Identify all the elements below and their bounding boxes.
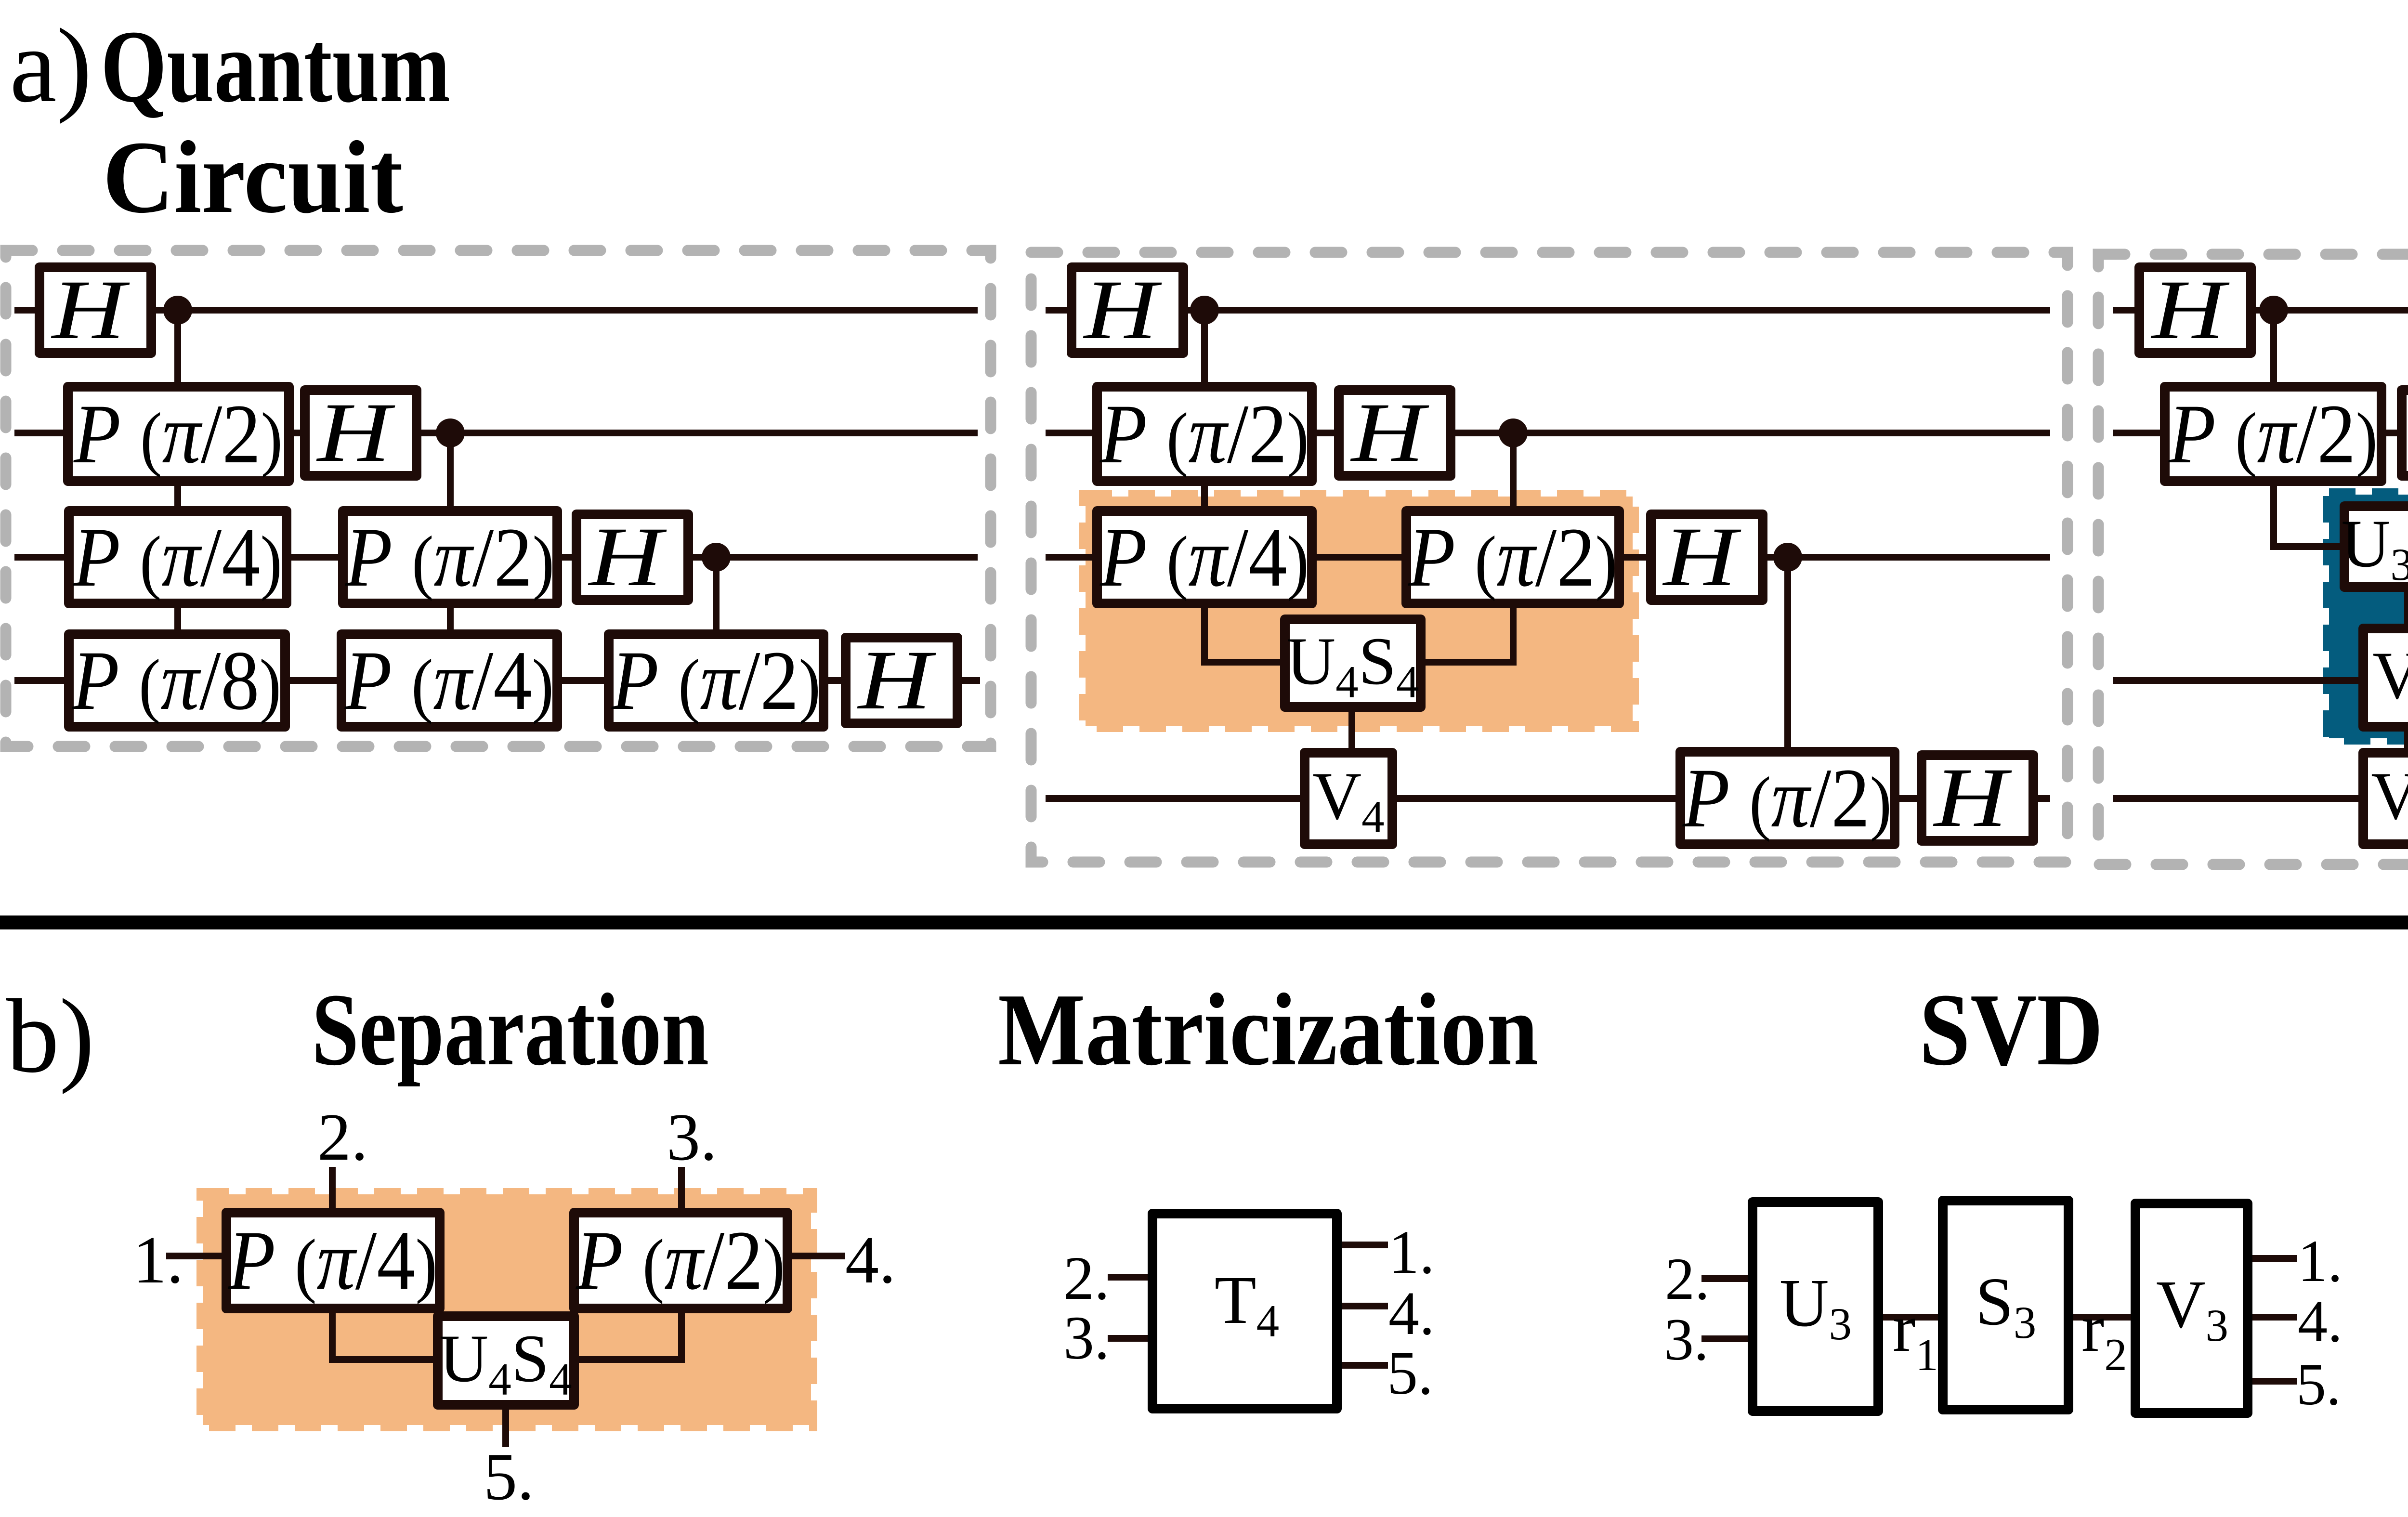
svg-text:P (π/8): P (π/8) xyxy=(72,634,281,728)
svg-text:3.: 3. xyxy=(1664,1307,1709,1373)
svg-text:H: H xyxy=(857,633,937,727)
svg-text:4.: 4. xyxy=(845,1223,896,1297)
svg-text:H: H xyxy=(1662,510,1742,604)
svg-text:2.: 2. xyxy=(1665,1246,1710,1312)
svg-text:5.: 5. xyxy=(2296,1351,2341,1417)
svg-text:H: H xyxy=(1083,263,1163,357)
svg-text:1.: 1. xyxy=(133,1223,183,1297)
svg-text:P (π/2): P (π/2) xyxy=(73,387,283,481)
svg-text:Matricization: Matricization xyxy=(998,972,1538,1087)
svg-text:H: H xyxy=(51,263,131,357)
svg-text:4.: 4. xyxy=(1388,1279,1435,1347)
svg-text:V4: V4 xyxy=(2371,758,2408,842)
svg-text:H: H xyxy=(588,510,667,604)
svg-text:V3: V3 xyxy=(2372,638,2408,722)
svg-text:b): b) xyxy=(6,977,94,1095)
svg-text:H: H xyxy=(316,386,396,480)
svg-text:1.: 1. xyxy=(1388,1218,1435,1286)
svg-text:P (π/2): P (π/2) xyxy=(576,1214,785,1308)
svg-text:P (π/2): P (π/2) xyxy=(1408,510,1617,604)
svg-text:P (π/2): P (π/2) xyxy=(611,634,821,728)
svg-text:3.: 3. xyxy=(1063,1304,1110,1372)
svg-text:4.: 4. xyxy=(2298,1288,2343,1354)
svg-text:2.: 2. xyxy=(317,1100,368,1175)
svg-text:5.: 5. xyxy=(1387,1339,1433,1407)
svg-text:P (π/4): P (π/4) xyxy=(1099,510,1309,604)
svg-text:P (π/2): P (π/2) xyxy=(345,510,554,604)
svg-text:P (π/2): P (π/2) xyxy=(1682,751,1892,845)
svg-text:P (π/4): P (π/4) xyxy=(228,1214,437,1308)
svg-text:H: H xyxy=(1350,386,1430,480)
svg-text:a): a) xyxy=(10,7,92,124)
svg-text:P (π/4): P (π/4) xyxy=(73,510,282,604)
svg-text:Circuit: Circuit xyxy=(103,119,403,235)
svg-text:P (π/4): P (π/4) xyxy=(344,634,554,728)
svg-text:1.: 1. xyxy=(2298,1228,2343,1294)
svg-text:Quantum: Quantum xyxy=(101,9,450,124)
svg-text:5.: 5. xyxy=(484,1439,534,1514)
svg-text:P (π/2): P (π/2) xyxy=(2168,387,2378,481)
svg-text:SVD: SVD xyxy=(1919,972,2103,1087)
svg-text:3.: 3. xyxy=(667,1100,717,1175)
svg-text:2.: 2. xyxy=(1063,1244,1110,1312)
svg-text:H: H xyxy=(1933,751,2013,845)
svg-text:P (π/2): P (π/2) xyxy=(1099,387,1309,481)
svg-text:Separation: Separation xyxy=(312,972,709,1087)
svg-text:H: H xyxy=(2151,263,2230,357)
